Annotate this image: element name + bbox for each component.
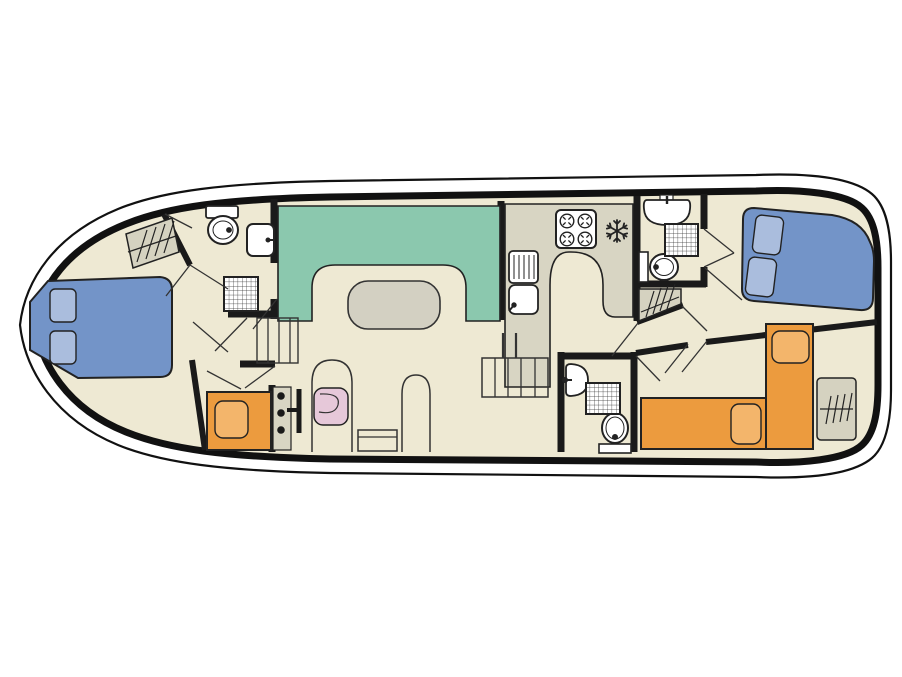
shower-grid-icon (586, 383, 620, 414)
pillow (731, 404, 761, 444)
burner-icon (560, 232, 574, 246)
pillow (50, 289, 76, 322)
shower-grid-icon (665, 224, 698, 256)
throttle-lever-icon (297, 389, 302, 433)
port-side-bed (207, 392, 271, 450)
galley-sink (509, 251, 538, 314)
forward-shower (224, 277, 258, 311)
burner-icon (560, 214, 574, 228)
console-knobs (277, 392, 285, 434)
pillow (50, 331, 76, 364)
sink-basin (509, 285, 538, 314)
stove (556, 210, 596, 248)
aft-shower (586, 383, 620, 414)
pillow (752, 214, 784, 255)
boat-floor-plan (0, 0, 902, 677)
shower-grid-icon (224, 277, 258, 311)
pilot-seat (314, 388, 348, 425)
floor-plan-canvas (0, 0, 902, 677)
saloon-table (348, 281, 440, 329)
pillow (215, 401, 248, 438)
toilet-cistern (639, 252, 648, 282)
pillow (772, 331, 809, 363)
burner-icon (578, 232, 592, 246)
toilet-cistern (599, 444, 631, 453)
stern-wardrobe (817, 378, 856, 440)
throttle-lever-icon (287, 408, 297, 412)
pillow (745, 256, 777, 297)
burner-icon (578, 214, 592, 228)
mid-shower (665, 224, 698, 256)
